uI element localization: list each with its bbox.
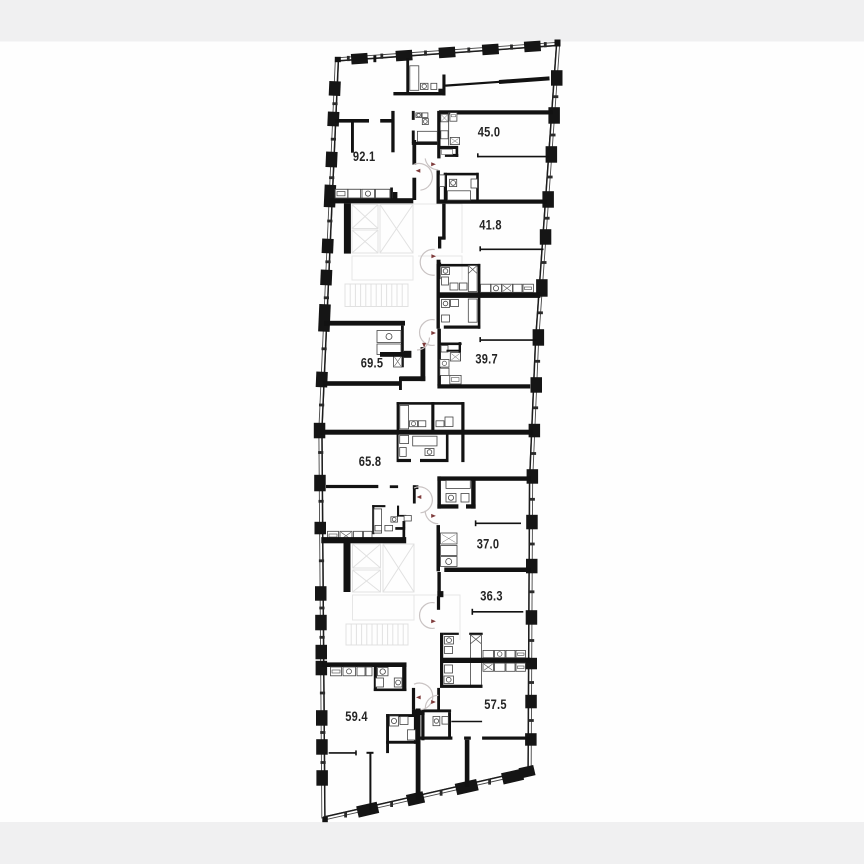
svg-text:92.1: 92.1 <box>353 148 376 164</box>
svg-text:36.3: 36.3 <box>480 588 503 604</box>
svg-text:57.5: 57.5 <box>484 696 507 712</box>
svg-text:39.7: 39.7 <box>475 351 498 367</box>
svg-text:65.8: 65.8 <box>359 453 382 469</box>
svg-text:37.0: 37.0 <box>477 536 500 552</box>
svg-text:45.0: 45.0 <box>478 123 501 139</box>
svg-text:41.8: 41.8 <box>479 217 502 233</box>
svg-text:69.5: 69.5 <box>361 354 384 370</box>
svg-text:59.4: 59.4 <box>345 708 368 724</box>
